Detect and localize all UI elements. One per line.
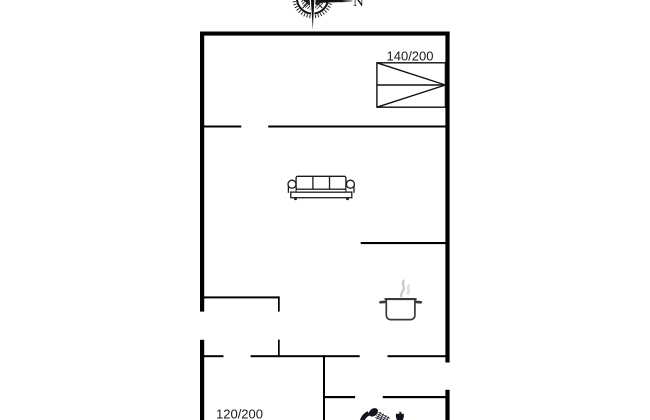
svg-text:120/200: 120/200: [216, 406, 263, 420]
svg-text:N: N: [353, 0, 364, 10]
svg-text:140/200: 140/200: [387, 48, 434, 63]
